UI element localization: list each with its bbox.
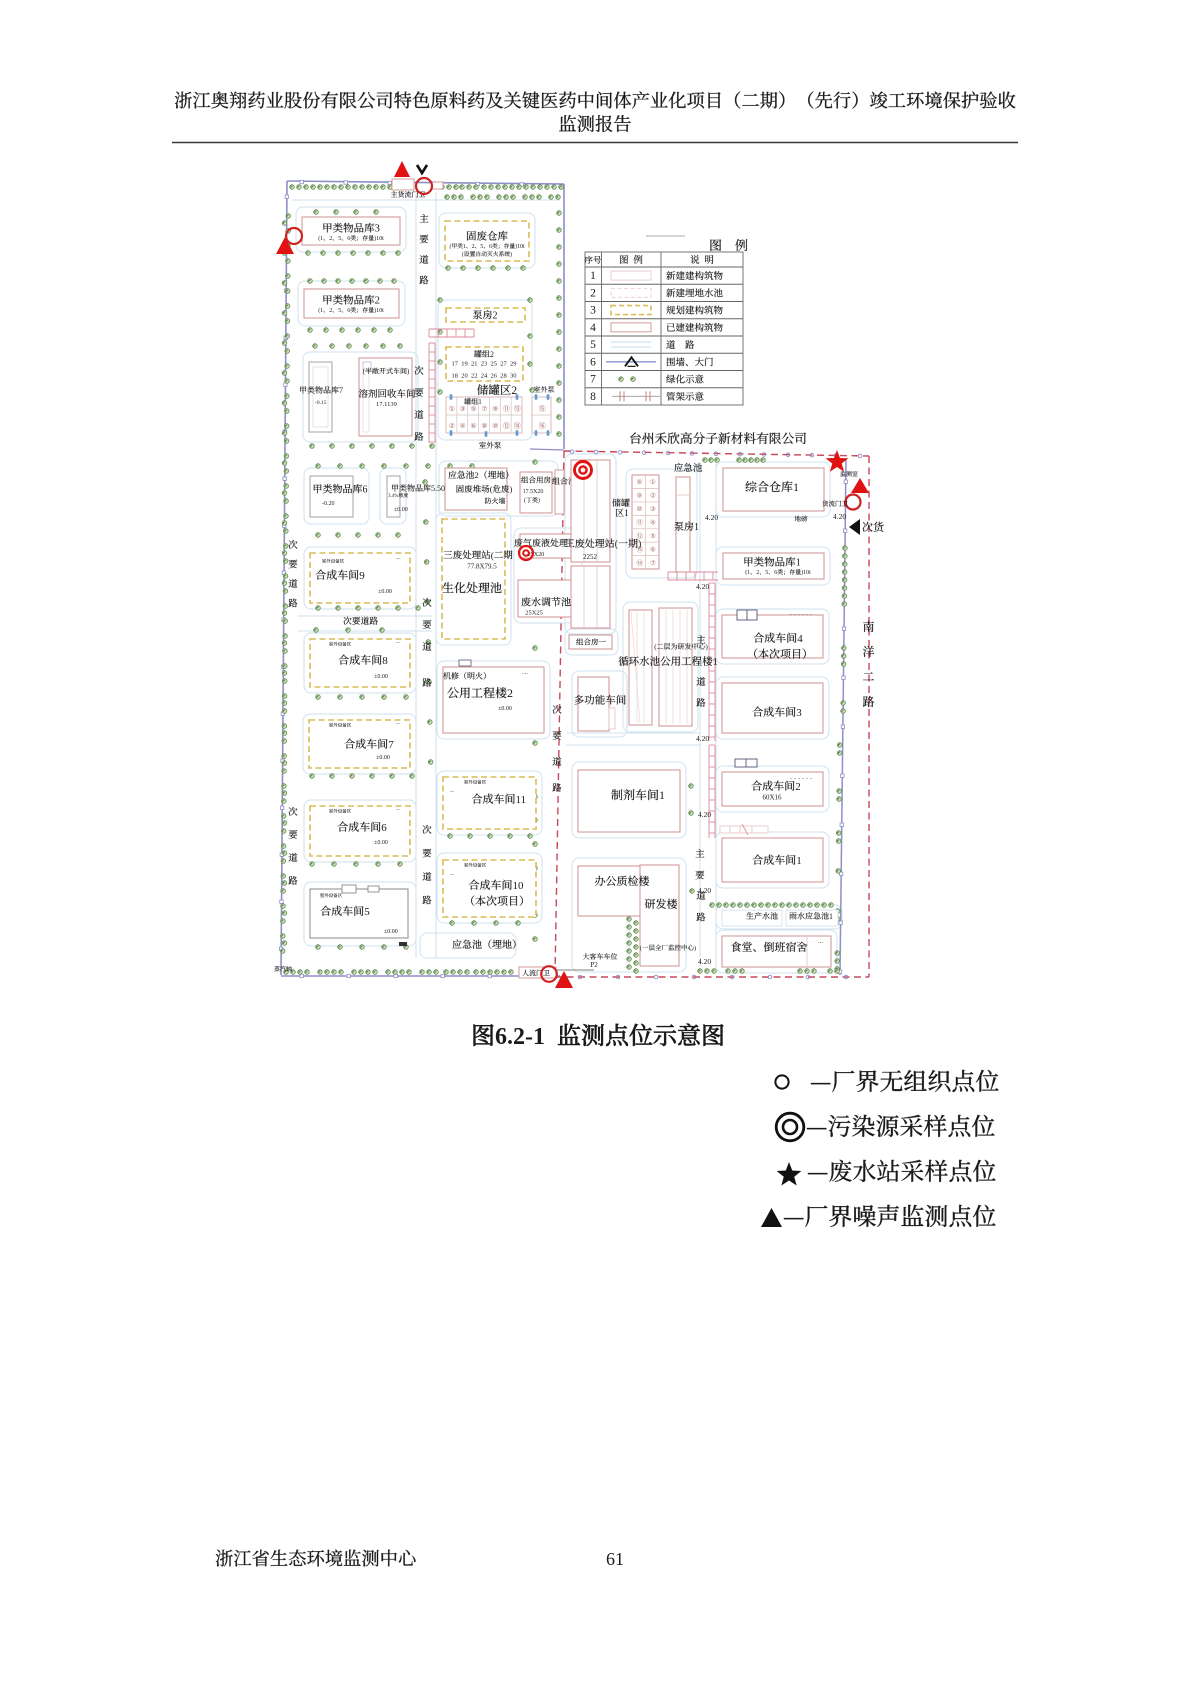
svg-text:②: ② (449, 422, 455, 430)
svg-text:17.5X20: 17.5X20 (523, 489, 544, 495)
svg-text:2: 2 (493, 311, 498, 322)
svg-text:): ) (694, 945, 696, 952)
svg-text:)10t: )10t (374, 235, 384, 242)
svg-text:±0.00: ±0.00 (394, 507, 408, 513)
svg-text:2: 2 (590, 287, 596, 299)
svg-text:1: 1 (793, 480, 799, 494)
svg-text:⑭: ⑭ (637, 559, 644, 567)
svg-text:(1: (1 (318, 307, 323, 314)
svg-text:±0.00: ±0.00 (376, 755, 390, 761)
svg-text:2: 2 (474, 470, 478, 480)
svg-text:⑬: ⑬ (514, 405, 521, 413)
svg-text:P2: P2 (590, 961, 598, 969)
svg-text:6: 6 (347, 236, 350, 242)
svg-text:....: .... (450, 872, 455, 877)
svg-text:): ) (510, 484, 513, 494)
svg-text:(1: (1 (318, 235, 323, 242)
svg-text:5: 5 (338, 236, 341, 242)
svg-text:±0.00: ±0.00 (374, 674, 388, 680)
svg-text:1: 1 (713, 657, 718, 668)
svg-text:. . . . . .: . . . . . . (790, 772, 812, 781)
svg-text:4.20: 4.20 (696, 582, 709, 591)
svg-text:5: 5 (338, 308, 341, 314)
svg-text:3.4%: 3.4% (388, 494, 398, 499)
svg-text:⑧: ⑧ (637, 478, 643, 486)
svg-text:(: ( (490, 484, 493, 494)
svg-text:⑤: ⑤ (650, 532, 656, 540)
svg-text:①: ① (449, 405, 455, 413)
svg-text:⑥: ⑥ (650, 545, 656, 553)
svg-text:)10t: )10t (374, 307, 384, 314)
svg-text:⑧: ⑧ (481, 422, 487, 430)
svg-text:5: 5 (480, 244, 483, 250)
svg-text:): ) (538, 497, 540, 504)
svg-text:8: 8 (590, 391, 596, 403)
svg-text:18: 18 (452, 372, 459, 379)
svg-text:20: 20 (461, 372, 468, 379)
svg-text:6: 6 (774, 570, 777, 576)
svg-text:5.50: 5.50 (431, 484, 445, 493)
svg-text:±0.00: ±0.00 (374, 840, 388, 846)
svg-text:④: ④ (650, 519, 656, 527)
svg-text:-0.20: -0.20 (322, 501, 335, 507)
svg-text:-0.15: -0.15 (315, 400, 327, 406)
svg-text:(: ( (450, 243, 452, 250)
svg-text:2: 2 (329, 308, 332, 314)
svg-text:5: 5 (364, 906, 370, 918)
svg-text:6: 6 (489, 244, 492, 250)
svg-text:⑦: ⑦ (650, 559, 656, 567)
svg-text:....: .... (396, 556, 401, 561)
svg-text:17: 17 (452, 360, 459, 367)
svg-text:): ) (510, 251, 512, 258)
svg-text:2: 2 (472, 244, 475, 250)
svg-text:2: 2 (756, 570, 759, 576)
svg-text:4.20: 4.20 (698, 810, 711, 819)
svg-text:. . . . . .: . . . . . . (790, 608, 812, 617)
svg-text:±0.00: ±0.00 (498, 706, 512, 712)
svg-text:4.20: 4.20 (698, 886, 711, 895)
svg-text:6: 6 (347, 308, 350, 314)
svg-text:4.20: 4.20 (705, 513, 718, 522)
svg-text:17.1139: 17.1139 (376, 401, 397, 408)
svg-text:22: 22 (471, 372, 478, 379)
svg-text:7: 7 (339, 386, 343, 395)
svg-text:9: 9 (359, 570, 365, 582)
svg-text:60X16: 60X16 (763, 794, 783, 802)
svg-text:27: 27 (500, 360, 507, 367)
svg-text:⑭: ⑭ (514, 422, 521, 430)
svg-text:4.20: 4.20 (696, 734, 709, 743)
svg-text:2: 2 (490, 350, 494, 359)
svg-text:7: 7 (388, 739, 394, 751)
svg-text:77.8X79.5: 77.8X79.5 (467, 563, 497, 571)
svg-text:2: 2 (329, 236, 332, 242)
svg-text:19: 19 (461, 360, 468, 367)
svg-text:⑨: ⑨ (492, 405, 498, 413)
svg-text:⑦: ⑦ (481, 405, 487, 413)
svg-text:8: 8 (382, 655, 388, 667)
svg-text:6: 6 (363, 485, 368, 496)
svg-text:⑩: ⑩ (492, 422, 498, 430)
svg-text:24: 24 (481, 372, 488, 379)
svg-text:7: 7 (590, 374, 596, 386)
svg-text:)10t: )10t (801, 569, 811, 576)
svg-text:3: 3 (590, 305, 596, 317)
svg-text:....: .... (396, 640, 401, 645)
svg-text:6.2-1: 6.2-1 (495, 1024, 545, 1050)
svg-text:61: 61 (606, 1549, 624, 1569)
svg-text:28: 28 (500, 372, 507, 379)
svg-text:....: .... (450, 789, 455, 794)
svg-text:1: 1 (478, 398, 482, 406)
svg-text:30: 30 (510, 372, 517, 379)
svg-text:1: 1 (694, 522, 699, 533)
svg-text:(: ( (491, 550, 494, 561)
svg-text:⑪: ⑪ (637, 519, 644, 527)
svg-text:⑮: ⑮ (539, 405, 546, 413)
svg-text:5: 5 (765, 570, 768, 576)
svg-text:1: 1 (796, 558, 801, 569)
svg-text:4.20: 4.20 (698, 957, 711, 966)
svg-text:(: ( (640, 945, 642, 952)
svg-text:3: 3 (375, 224, 380, 235)
svg-text:③: ③ (650, 505, 656, 513)
svg-text:1: 1 (659, 788, 665, 802)
svg-text:....: .... (396, 721, 401, 726)
svg-text:11: 11 (516, 794, 527, 806)
svg-text:...: ... (818, 937, 824, 945)
svg-text:2: 2 (375, 296, 380, 307)
svg-text:5: 5 (590, 339, 596, 351)
svg-text:....: .... (522, 670, 529, 676)
svg-text:±0.00: ±0.00 (378, 589, 392, 595)
svg-text:23: 23 (481, 360, 488, 367)
svg-text:4: 4 (797, 633, 803, 645)
svg-text:⑨: ⑨ (637, 492, 643, 500)
svg-text:1: 1 (829, 912, 833, 921)
svg-text:③: ③ (460, 405, 466, 413)
svg-text:±0.00: ±0.00 (384, 929, 398, 935)
svg-text:25: 25 (491, 360, 498, 367)
svg-text:④: ④ (460, 422, 466, 430)
svg-text:2: 2 (507, 686, 513, 700)
svg-text:....: .... (396, 807, 401, 812)
svg-text:6: 6 (590, 356, 596, 368)
svg-text:1: 1 (463, 244, 466, 250)
svg-text:): ) (638, 539, 641, 550)
svg-text:4.20: 4.20 (833, 512, 846, 521)
svg-text:....: .... (795, 937, 802, 945)
svg-text:26: 26 (491, 372, 498, 379)
svg-text:⑤: ⑤ (470, 405, 476, 413)
svg-text:⑫: ⑫ (503, 422, 510, 430)
svg-text:⑥: ⑥ (470, 422, 476, 430)
svg-text:25X25: 25X25 (525, 609, 543, 616)
svg-text:3: 3 (796, 707, 802, 719)
svg-text:21: 21 (471, 360, 478, 367)
svg-text:2252: 2252 (583, 553, 598, 561)
svg-text:(: ( (462, 251, 464, 258)
svg-text:②: ② (650, 492, 656, 500)
svg-text:)10t: )10t (515, 243, 525, 250)
svg-text:6: 6 (381, 822, 387, 834)
svg-text:①: ① (650, 478, 656, 486)
svg-text:⑯: ⑯ (539, 422, 546, 430)
svg-text:29: 29 (510, 360, 517, 367)
svg-text:⑩: ⑩ (637, 505, 643, 513)
svg-text:1: 1 (590, 270, 596, 282)
svg-text:1: 1 (796, 855, 802, 867)
svg-text:(1: (1 (745, 569, 750, 576)
svg-text:⑪: ⑪ (503, 405, 510, 413)
svg-text:(: ( (524, 497, 526, 504)
svg-text:10: 10 (513, 880, 525, 892)
svg-text:4: 4 (590, 322, 596, 334)
svg-text:1: 1 (624, 508, 629, 518)
svg-text:2: 2 (795, 781, 801, 793)
